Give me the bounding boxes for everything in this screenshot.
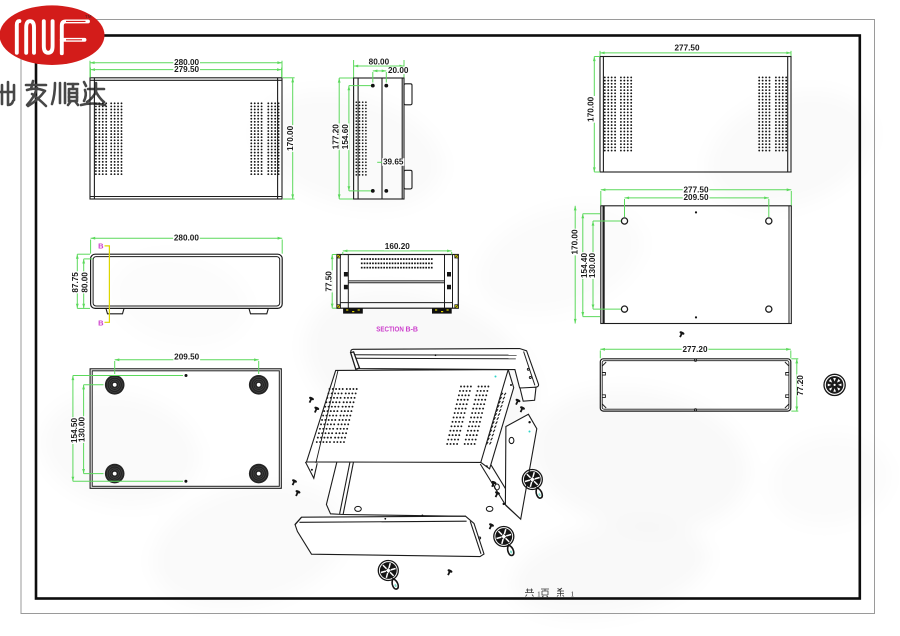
svg-text:77.20: 77.20 [796, 375, 805, 396]
svg-text:160.20: 160.20 [385, 242, 410, 251]
svg-text:80.00: 80.00 [80, 272, 89, 293]
svg-text:80.00: 80.00 [369, 57, 390, 66]
svg-text:39.65: 39.65 [383, 158, 404, 167]
svg-text:20.00: 20.00 [388, 66, 409, 75]
svg-text:B: B [98, 242, 104, 251]
svg-text:1: 1 [571, 589, 575, 598]
svg-text:170.00: 170.00 [587, 96, 596, 121]
svg-text:277.20: 277.20 [682, 345, 707, 354]
svg-text:279.50: 279.50 [174, 65, 199, 74]
svg-text:B-B: B-B [406, 324, 419, 333]
svg-text:1: 1 [537, 589, 541, 598]
svg-text:170.00: 170.00 [570, 229, 579, 254]
svg-text:280.00: 280.00 [174, 233, 199, 242]
svg-text:170.00: 170.00 [286, 125, 295, 150]
svg-text:209.50: 209.50 [174, 353, 199, 362]
svg-text:209.50: 209.50 [683, 193, 708, 202]
svg-text:87.75: 87.75 [71, 272, 80, 293]
svg-text:77.50: 77.50 [324, 271, 333, 292]
svg-text:SECTION: SECTION [376, 324, 404, 333]
svg-text:B: B [98, 319, 104, 328]
svg-text:177.20: 177.20 [331, 124, 340, 149]
svg-text:277.50: 277.50 [674, 44, 699, 53]
svg-text:130.00: 130.00 [588, 253, 597, 278]
svg-text:154.60: 154.60 [341, 124, 350, 149]
svg-text:130.00: 130.00 [78, 417, 87, 442]
svg-text:TM: TM [85, 14, 92, 19]
